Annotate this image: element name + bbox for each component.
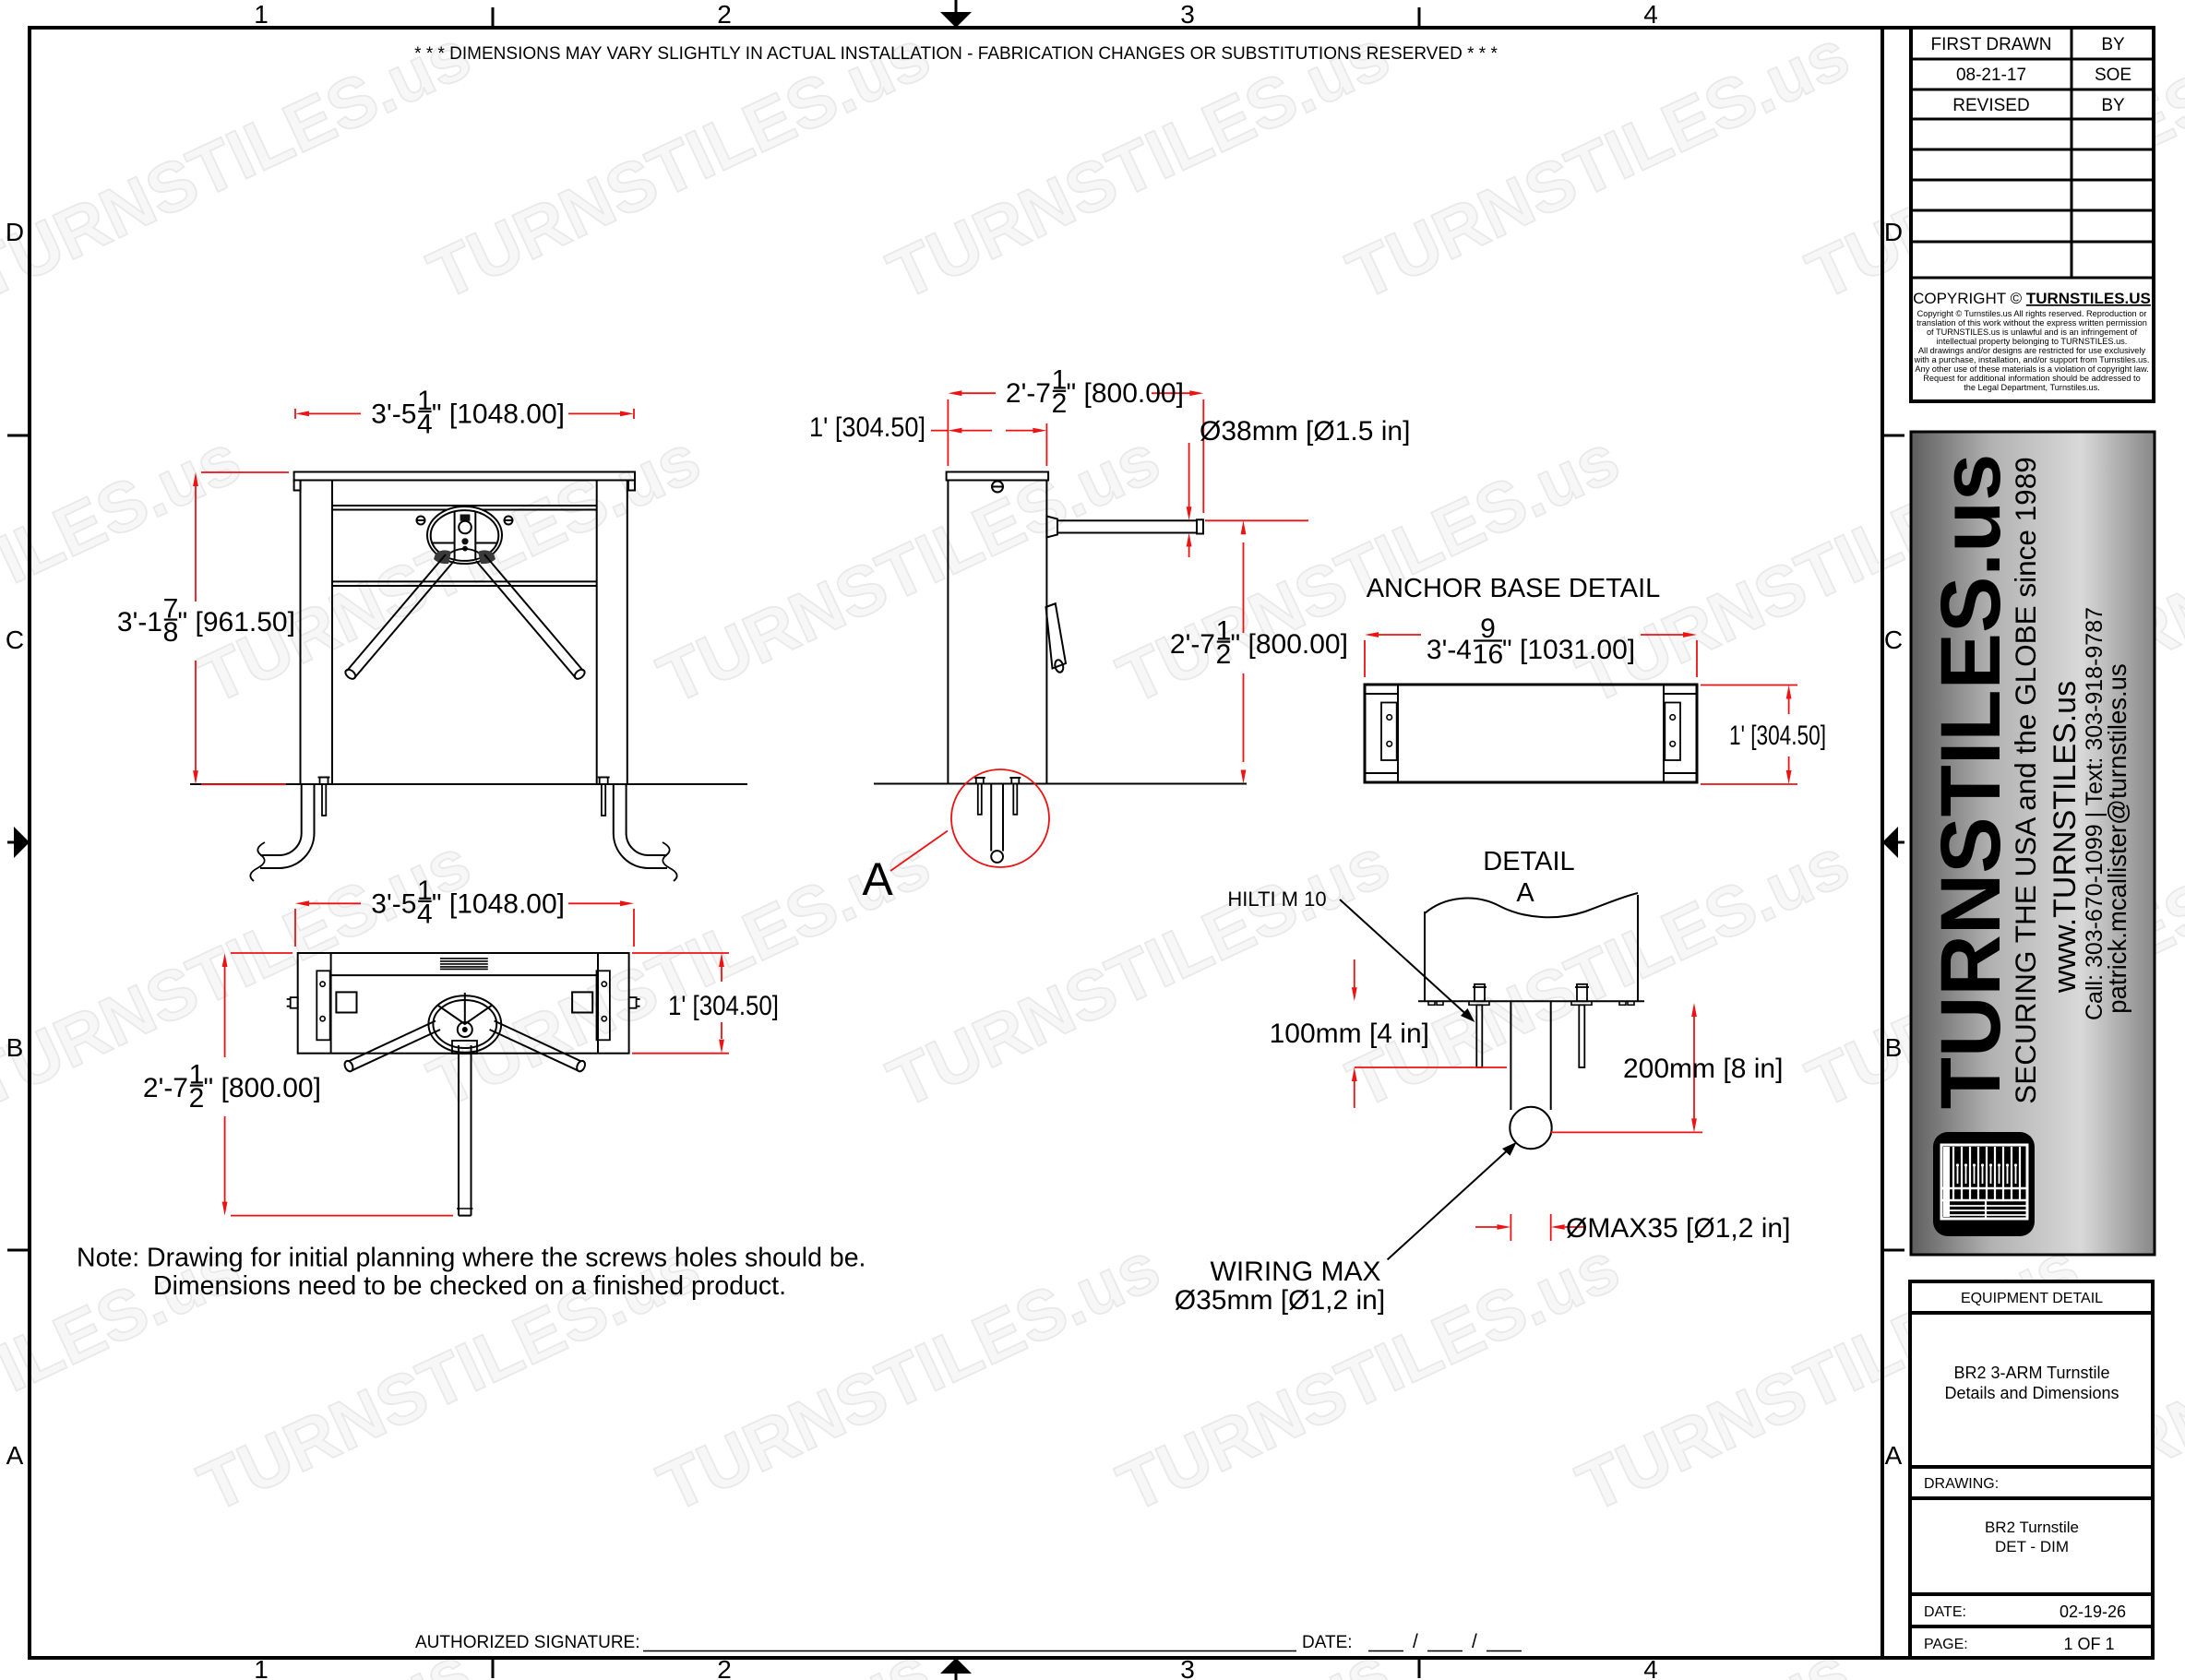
svg-text:DATE:: DATE: <box>1924 1604 1966 1620</box>
svg-text:DRAWING:: DRAWING: <box>1924 1476 1999 1492</box>
svg-text:A: A <box>1885 1441 1903 1470</box>
svg-text:TURNSTILES.us: TURNSTILES.us <box>1924 454 2018 1109</box>
svg-text:A: A <box>862 853 893 905</box>
svg-text:2: 2 <box>1052 388 1068 419</box>
svg-text:D: D <box>6 218 24 246</box>
svg-text:08-21-17: 08-21-17 <box>1956 66 2026 85</box>
svg-text:" [1048.00]: " [1048.00] <box>432 399 565 429</box>
svg-text:1: 1 <box>254 1655 269 1680</box>
svg-text:WIRING MAX: WIRING MAX <box>1211 1257 1381 1287</box>
svg-text:TURNSTILES.us: TURNSTILES.us <box>647 419 1171 719</box>
svg-text:Details and Dimensions: Details and Dimensions <box>1944 1384 2119 1402</box>
svg-text:of TURNSTILES.us is unlawful a: of TURNSTILES.us is unlawful and is an i… <box>1927 328 2138 337</box>
svg-text:Ø35mm [Ø1,2 in]: Ø35mm [Ø1,2 in] <box>1175 1285 1385 1316</box>
svg-text:BR2 3-ARM Turnstile: BR2 3-ARM Turnstile <box>1953 1364 2109 1382</box>
svg-text:Ø38mm [Ø1.5 in]: Ø38mm [Ø1.5 in] <box>1200 416 1410 447</box>
svg-text:REVISED: REVISED <box>1952 96 2029 115</box>
svg-text:DET - DIM: DET - DIM <box>1995 1538 2069 1555</box>
svg-text:DATE:: DATE: <box>1302 1633 1353 1652</box>
svg-text:02-19-26: 02-19-26 <box>2060 1603 2126 1621</box>
svg-text:TURNSTILES.us: TURNSTILES.us <box>0 15 482 315</box>
svg-text:4: 4 <box>417 899 433 929</box>
svg-text:TURNSTILES.us: TURNSTILES.us <box>187 419 711 719</box>
svg-text:intellectual property belongin: intellectual property belonging to TURNS… <box>1937 337 2128 346</box>
svg-text:HILTI M 10: HILTI M 10 <box>1227 888 1326 911</box>
svg-text:All drawings and/or designs ar: All drawings and/or designs are restrict… <box>1918 346 2146 355</box>
svg-text:2: 2 <box>717 1655 732 1680</box>
svg-text:4: 4 <box>1643 0 1658 29</box>
svg-text:Note: Drawing for initial pla: Note: Drawing for initial planning where… <box>77 1244 866 1273</box>
svg-text:B: B <box>6 1033 24 1062</box>
svg-text:Copyright © Turnstiles.us All: Copyright © Turnstiles.us All rights res… <box>1917 309 2147 318</box>
svg-text:/: / <box>1413 1631 1418 1652</box>
svg-text:C: C <box>6 626 24 654</box>
svg-text:3: 3 <box>1180 1655 1195 1680</box>
svg-text:" [961.50]: " [961.50] <box>178 607 295 637</box>
svg-text:BY: BY <box>2101 96 2125 115</box>
svg-text:D: D <box>1884 218 1903 246</box>
svg-text:100mm [4 in]: 100mm [4 in] <box>1270 1019 1429 1049</box>
svg-text:" [800.00]: " [800.00] <box>1067 378 1184 409</box>
svg-text:" [800.00]: " [800.00] <box>204 1073 321 1103</box>
svg-text:translation of this work witho: translation of this work without the exp… <box>1916 318 2147 328</box>
svg-text:A: A <box>6 1441 24 1470</box>
svg-text:the Legal Department, Turnstil: the Legal Department, Turnstiles.us. <box>1964 383 2100 392</box>
svg-text:3'-5: 3'-5 <box>371 399 416 429</box>
svg-text:8: 8 <box>163 617 179 648</box>
svg-text:3: 3 <box>1180 0 1195 29</box>
svg-text:TURNSTILES.us: TURNSTILES.us <box>1106 419 1630 719</box>
svg-text:1 OF 1: 1 OF 1 <box>2063 1635 2114 1653</box>
svg-text:" [1031.00]: " [1031.00] <box>1502 635 1635 665</box>
svg-text:1' [304.50]: 1' [304.50] <box>668 991 779 1021</box>
svg-text:A: A <box>1516 878 1534 908</box>
svg-text:COPYRIGHT © TURNSTILES.US: COPYRIGHT © TURNSTILES.US <box>1913 290 2151 307</box>
svg-text:1: 1 <box>254 0 269 29</box>
svg-text:200mm [8 in]: 200mm [8 in] <box>1623 1054 1783 1084</box>
svg-text:SECURING THE USA and the GLOBE: SECURING THE USA and the GLOBE since 198… <box>2009 457 2042 1104</box>
svg-text:Dimensions need to be checked: Dimensions need to be checked on a finis… <box>153 1271 786 1301</box>
svg-text:3'-4: 3'-4 <box>1427 635 1472 665</box>
svg-text:Request for additional informa: Request for additional information shoul… <box>1923 374 2140 383</box>
svg-text:" [1048.00]: " [1048.00] <box>432 888 565 919</box>
svg-text:ANCHOR BASE DETAIL: ANCHOR BASE DETAIL <box>1367 574 1661 603</box>
svg-text:3'-1: 3'-1 <box>117 607 162 637</box>
svg-text:with a purchase, installation,: with a purchase, installation, and/or su… <box>1914 355 2150 364</box>
svg-text:2: 2 <box>717 0 732 29</box>
svg-text:/: / <box>1472 1631 1477 1652</box>
svg-text:4: 4 <box>1643 1655 1658 1680</box>
svg-text:B: B <box>1885 1033 1903 1062</box>
svg-text:PAGE:: PAGE: <box>1924 1637 1968 1652</box>
svg-text:1' [304.50]: 1' [304.50] <box>809 412 925 443</box>
svg-text:2'-7: 2'-7 <box>1006 378 1051 409</box>
svg-text:Any other use of these materia: Any other use of these materials is a vi… <box>1915 364 2148 374</box>
svg-text:2: 2 <box>189 1083 205 1114</box>
svg-text:SOE: SOE <box>2095 66 2131 85</box>
svg-text:BR2 Turnstile: BR2 Turnstile <box>1985 1519 2079 1536</box>
svg-text:2'-7: 2'-7 <box>143 1073 188 1103</box>
svg-text:TURNSTILES.us: TURNSTILES.us <box>877 823 1401 1123</box>
svg-text:4: 4 <box>417 409 433 439</box>
svg-text:16: 16 <box>1473 639 1503 670</box>
svg-text:EQUIPMENT DETAIL: EQUIPMENT DETAIL <box>1961 1291 2103 1306</box>
svg-text:ØMAX35 [Ø1,2 in]: ØMAX35 [Ø1,2 in] <box>1566 1213 1790 1244</box>
svg-text:" [800.00]: " [800.00] <box>1231 629 1348 660</box>
svg-text:1' [304.50]: 1' [304.50] <box>1729 721 1826 751</box>
svg-text:2'-7: 2'-7 <box>1170 629 1215 660</box>
svg-text:2: 2 <box>1216 639 1232 670</box>
svg-text:C: C <box>1884 626 1903 654</box>
svg-text:DETAIL: DETAIL <box>1483 847 1574 876</box>
svg-text:FIRST DRAWN: FIRST DRAWN <box>1931 35 2052 54</box>
svg-text:TURNSTILES.us: TURNSTILES.us <box>0 1631 482 1680</box>
svg-text:AUTHORIZED SIGNATURE:: AUTHORIZED SIGNATURE: <box>415 1633 640 1652</box>
svg-text:3'-5: 3'-5 <box>371 888 416 919</box>
svg-text:patrick.mcallister@turnstiles.: patrick.mcallister@turnstiles.us <box>2103 663 2131 1013</box>
svg-text:BY: BY <box>2101 35 2125 54</box>
svg-text:www.TURNSTILES.us: www.TURNSTILES.us <box>2048 681 2083 994</box>
svg-text:* * * DIMENSIONS MAY VARY SLI: * * * DIMENSIONS MAY VARY SLIGHTLY IN AC… <box>414 44 1498 64</box>
